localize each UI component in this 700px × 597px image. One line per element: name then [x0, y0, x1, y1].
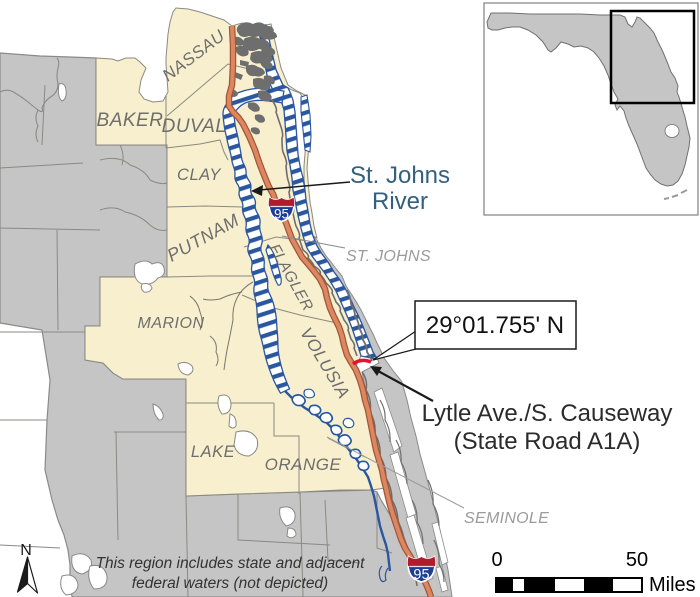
svg-text:SEMINOLE: SEMINOLE: [464, 510, 549, 527]
svg-text:95: 95: [413, 567, 429, 583]
svg-text:This region includes state and: This region includes state and adjacent: [96, 555, 366, 572]
svg-text:federal waters (not depicted): federal waters (not depicted): [132, 575, 328, 592]
svg-text:Miles: Miles: [649, 574, 696, 596]
svg-text:LAKE: LAKE: [191, 443, 236, 461]
svg-text:50: 50: [626, 549, 648, 571]
svg-text:DUVAL: DUVAL: [162, 116, 227, 137]
svg-text:MARION: MARION: [138, 315, 205, 332]
svg-text:St. Johns: St. Johns: [350, 162, 450, 189]
svg-text:ORANGE: ORANGE: [265, 455, 342, 474]
svg-text:River: River: [372, 188, 428, 215]
svg-text:ST. JOHNS: ST. JOHNS: [346, 248, 431, 265]
svg-text:BAKER: BAKER: [97, 110, 164, 131]
svg-text:(State Road A1A): (State Road A1A): [454, 428, 641, 455]
svg-text:0: 0: [491, 549, 502, 571]
svg-text:29°01.755' N: 29°01.755' N: [426, 312, 564, 339]
svg-text:95: 95: [274, 207, 289, 222]
svg-text:Lytle Ave./S. Causeway: Lytle Ave./S. Causeway: [422, 400, 673, 427]
svg-text:N: N: [20, 542, 32, 559]
svg-text:CLAY: CLAY: [177, 166, 221, 184]
